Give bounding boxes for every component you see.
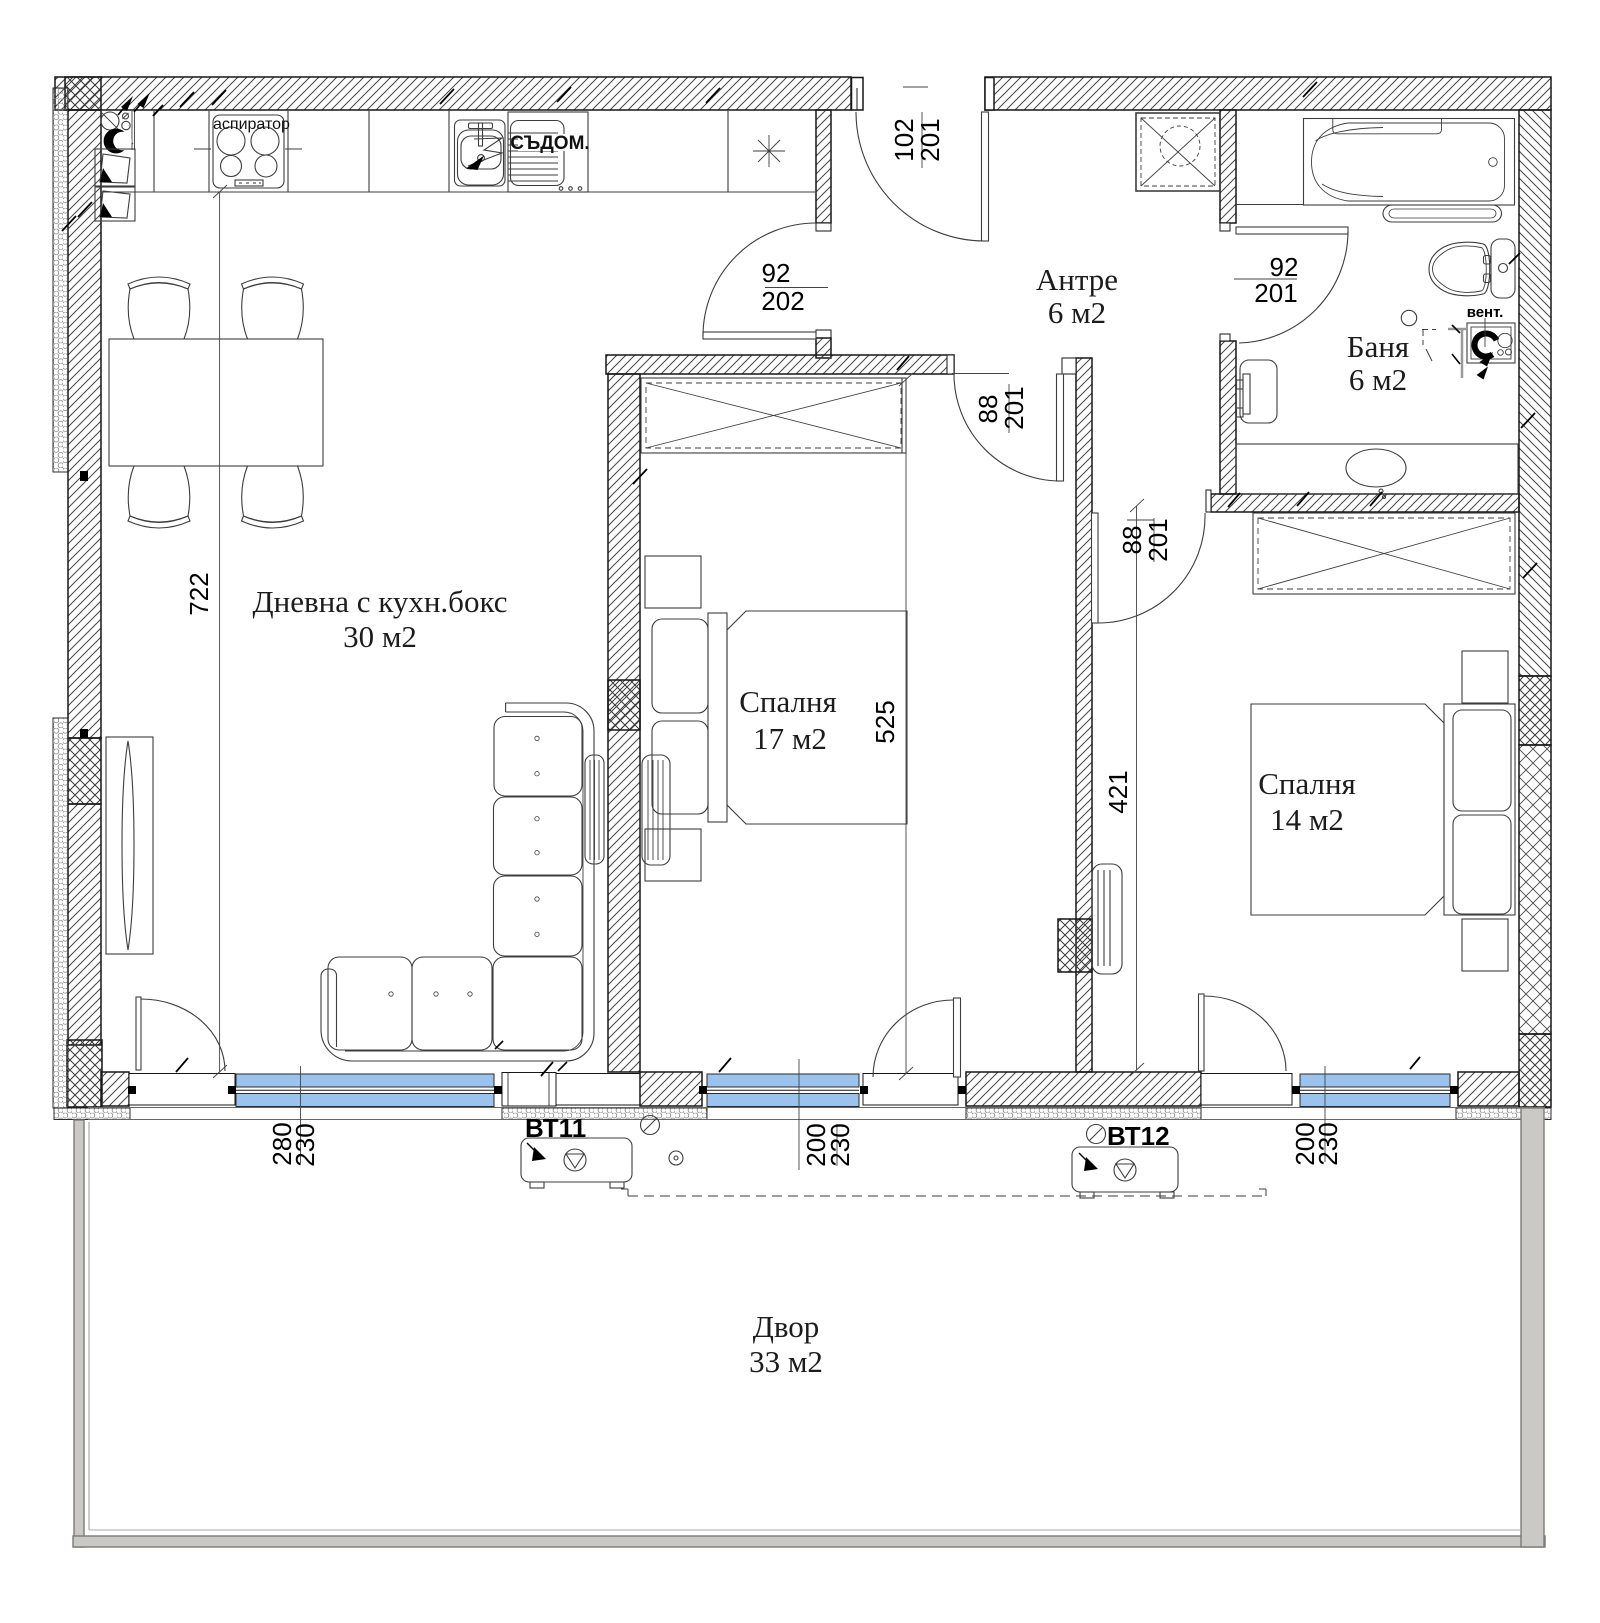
svg-text:Двор: Двор <box>753 1309 820 1344</box>
svg-text:202: 202 <box>761 286 804 316</box>
svg-text:230: 230 <box>290 1123 320 1166</box>
svg-text:722: 722 <box>184 572 214 615</box>
svg-text:ВТ11: ВТ11 <box>525 1113 586 1143</box>
svg-text:92: 92 <box>762 258 791 288</box>
svg-text:201: 201 <box>915 118 945 161</box>
svg-text:Спалня: Спалня <box>1258 766 1356 801</box>
svg-text:14 м2: 14 м2 <box>1270 802 1344 837</box>
svg-text:17 м2: 17 м2 <box>753 721 827 756</box>
svg-text:СЪДОМ.: СЪДОМ. <box>510 133 589 154</box>
svg-text:6 м2: 6 м2 <box>1048 295 1106 330</box>
svg-text:Дневна с кухн.бокс: Дневна с кухн.бокс <box>252 584 507 619</box>
svg-text:421: 421 <box>1103 770 1133 813</box>
svg-text:30 м2: 30 м2 <box>343 619 417 654</box>
svg-text:ВТ12: ВТ12 <box>1107 1121 1170 1151</box>
svg-text:Спалня: Спалня <box>739 684 837 719</box>
svg-text:525: 525 <box>870 700 900 743</box>
svg-text:201: 201 <box>1254 278 1297 308</box>
svg-text:аспиратор: аспиратор <box>213 116 290 133</box>
svg-text:33 м2: 33 м2 <box>749 1344 823 1379</box>
svg-text:Баня: Баня <box>1347 329 1409 364</box>
svg-text:230: 230 <box>1313 1122 1343 1165</box>
svg-text:201: 201 <box>1143 518 1173 561</box>
svg-text:6 м2: 6 м2 <box>1349 362 1407 397</box>
svg-text:вент.: вент. <box>1467 304 1504 321</box>
svg-text:230: 230 <box>825 1123 855 1166</box>
svg-text:Антре: Антре <box>1036 262 1118 297</box>
svg-text:201: 201 <box>999 386 1029 429</box>
